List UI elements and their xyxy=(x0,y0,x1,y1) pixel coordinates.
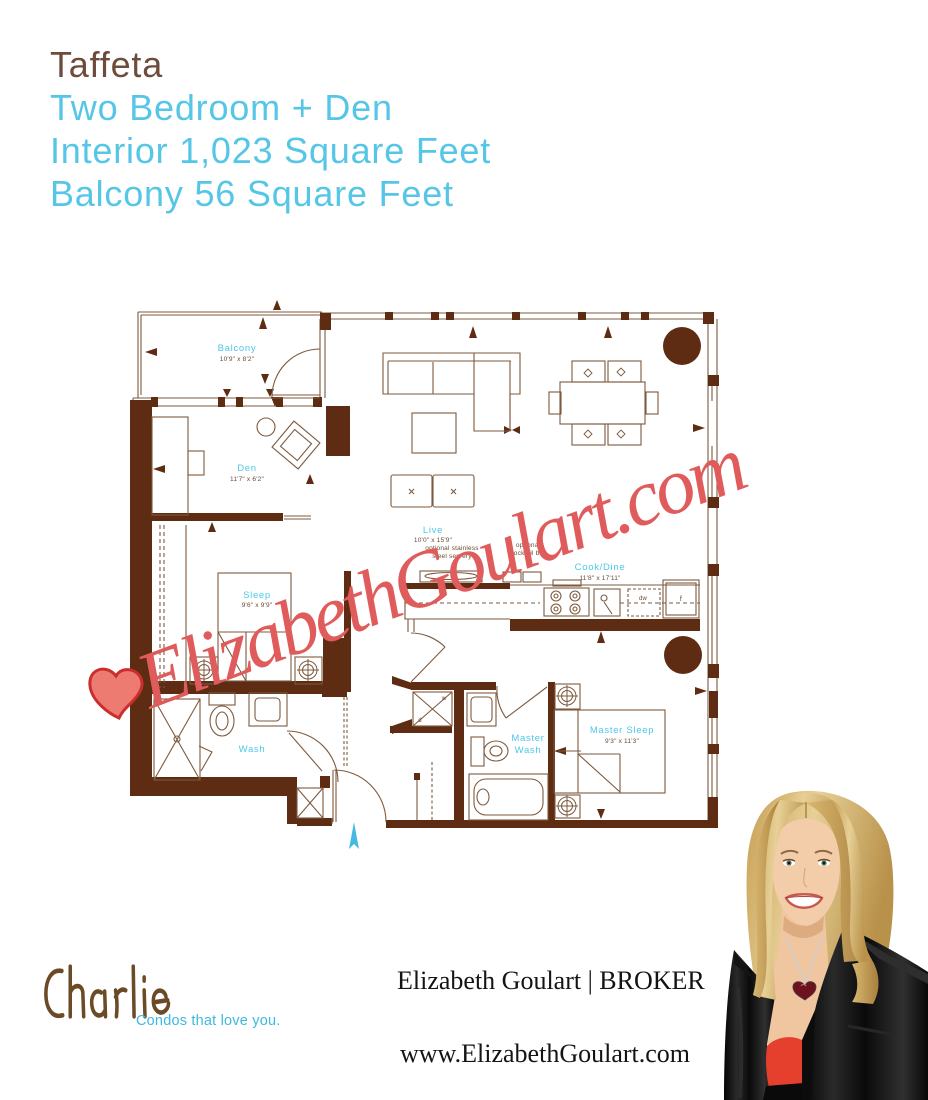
svg-text:9'3" x 11'3": 9'3" x 11'3" xyxy=(605,738,639,745)
svg-text:d: d xyxy=(418,718,422,724)
svg-text:Master Sleep: Master Sleep xyxy=(590,725,654,736)
svg-text:Wash: Wash xyxy=(239,744,266,755)
svg-text:Master: Master xyxy=(511,733,544,744)
svg-text:10'9" x 8'2": 10'9" x 8'2" xyxy=(220,356,255,363)
svg-text:Den: Den xyxy=(237,463,257,474)
svg-text:11'8" x 17'11": 11'8" x 17'11" xyxy=(579,575,621,582)
svg-text:f: f xyxy=(680,596,682,603)
svg-text:11'7" x 6'2": 11'7" x 6'2" xyxy=(230,476,264,483)
svg-text:w: w xyxy=(441,696,447,702)
svg-text:Wash: Wash xyxy=(515,745,542,756)
svg-text:dw: dw xyxy=(639,596,648,602)
svg-text:Balcony: Balcony xyxy=(218,343,257,354)
